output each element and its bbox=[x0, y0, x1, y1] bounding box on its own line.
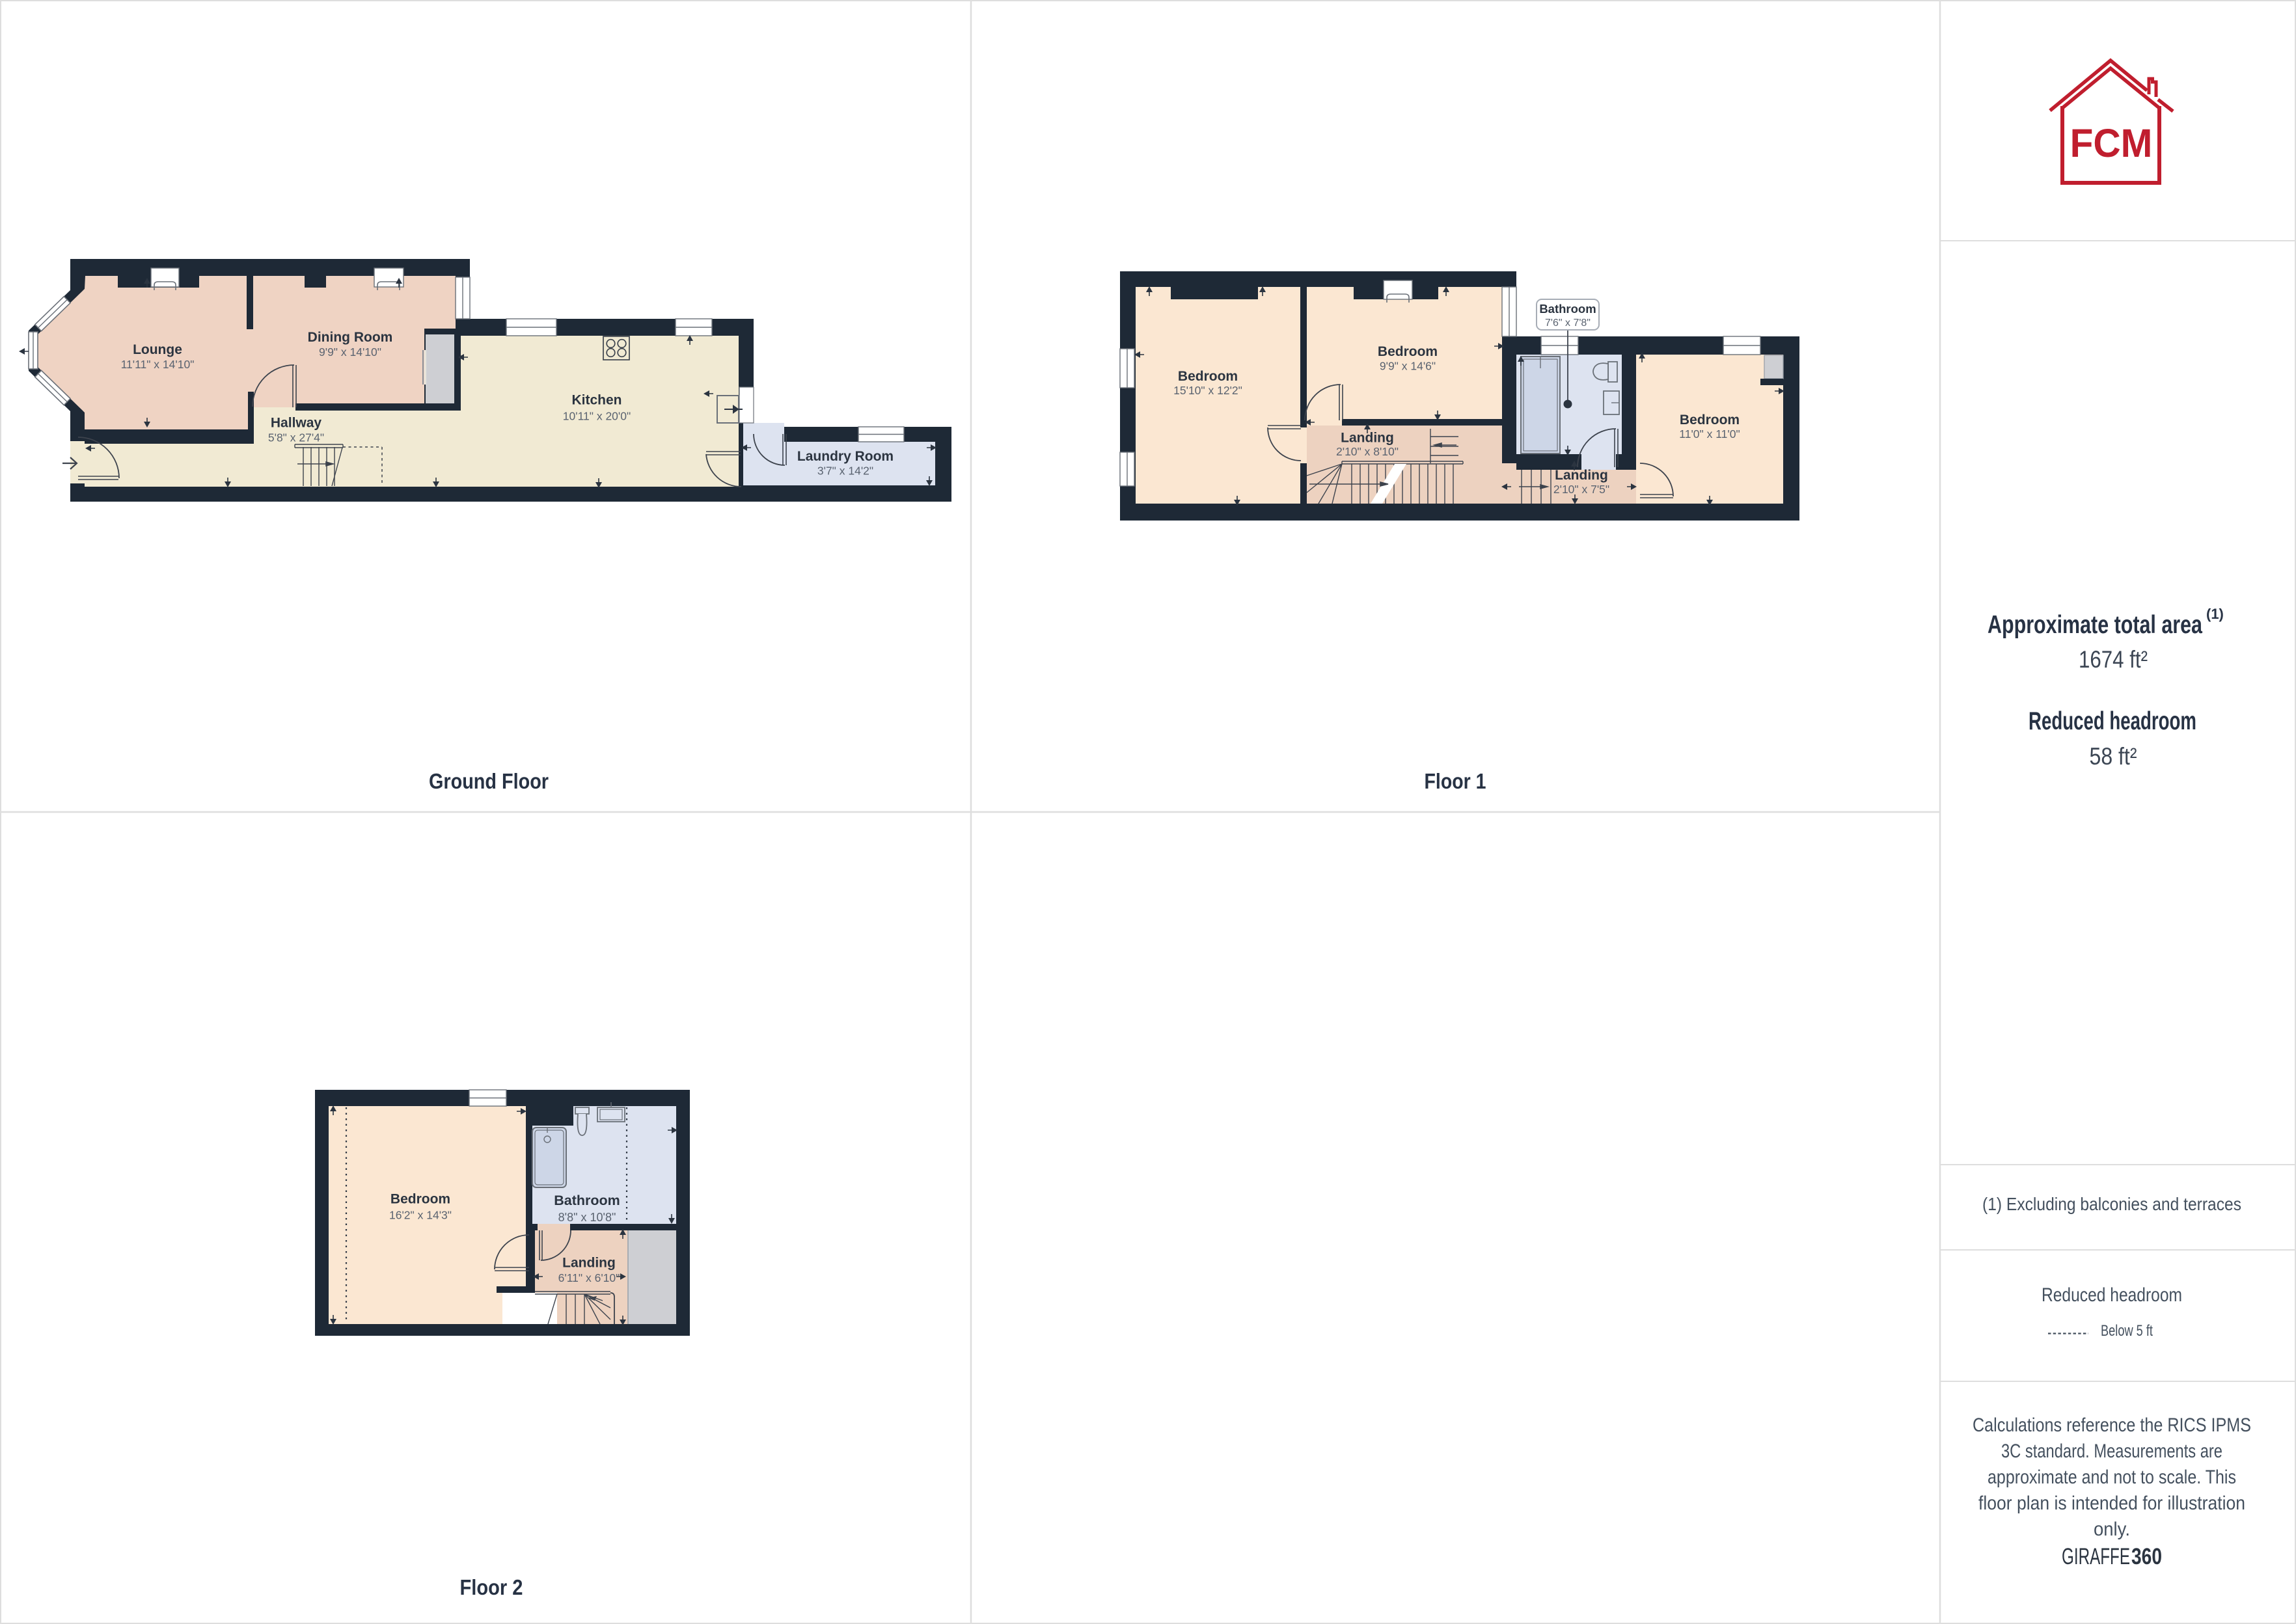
svg-text:Bedroom: Bedroom bbox=[390, 1192, 450, 1207]
svg-text:1674 ft²: 1674 ft² bbox=[2079, 646, 2148, 673]
svg-text:6'11" x 6'10": 6'11" x 6'10" bbox=[558, 1271, 620, 1284]
svg-text:11'0" x 11'0": 11'0" x 11'0" bbox=[1679, 427, 1740, 440]
svg-text:Laundry Room: Laundry Room bbox=[797, 449, 894, 464]
svg-text:Bathroom: Bathroom bbox=[554, 1193, 620, 1208]
svg-text:Ground Floor: Ground Floor bbox=[429, 769, 549, 793]
svg-text:3C standard. Measurements are: 3C standard. Measurements are bbox=[2001, 1441, 2222, 1462]
svg-text:Floor 1: Floor 1 bbox=[1425, 769, 1486, 793]
svg-text:9'9" x 14'6": 9'9" x 14'6" bbox=[1380, 360, 1436, 373]
svg-text:2'10" x 7'5": 2'10" x 7'5" bbox=[1553, 483, 1609, 496]
svg-text:15'10" x 12'2": 15'10" x 12'2" bbox=[1173, 384, 1242, 397]
svg-text:Landing: Landing bbox=[1341, 431, 1394, 446]
svg-text:Calculations reference the RIC: Calculations reference the RICS IPMS bbox=[1973, 1414, 2251, 1436]
svg-text:2'10" x 8'10": 2'10" x 8'10" bbox=[1336, 445, 1399, 458]
svg-text:Bedroom: Bedroom bbox=[1178, 369, 1238, 384]
svg-text:only.: only. bbox=[2094, 1519, 2130, 1540]
svg-text:Reduced headroom: Reduced headroom bbox=[2029, 707, 2196, 735]
svg-text:16'2" x 14'3": 16'2" x 14'3" bbox=[389, 1209, 452, 1222]
svg-text:Landing: Landing bbox=[1555, 468, 1608, 483]
svg-text:floor plan is intended for ill: floor plan is intended for illustration bbox=[1978, 1493, 2245, 1514]
svg-text:360: 360 bbox=[2131, 1544, 2162, 1569]
svg-text:(1) Excluding balconies and te: (1) Excluding balconies and terraces bbox=[1982, 1194, 2241, 1214]
svg-text:Kitchen: Kitchen bbox=[571, 393, 622, 408]
svg-text:approximate and not to scale.: approximate and not to scale. This bbox=[1988, 1467, 2236, 1488]
svg-text:Reduced headroom: Reduced headroom bbox=[2042, 1284, 2182, 1306]
svg-text:FCM: FCM bbox=[2070, 121, 2153, 165]
svg-text:GIRAFFE: GIRAFFE bbox=[2062, 1544, 2130, 1569]
svg-text:Hallway: Hallway bbox=[271, 416, 322, 431]
svg-text:10'11" x 20'0": 10'11" x 20'0" bbox=[563, 410, 631, 423]
svg-text:8'8" x 10'8": 8'8" x 10'8" bbox=[558, 1211, 616, 1224]
svg-text:Lounge: Lounge bbox=[133, 342, 182, 357]
svg-text:Approximate total area: Approximate total area bbox=[1988, 611, 2202, 639]
svg-text:11'11" x 14'10": 11'11" x 14'10" bbox=[121, 358, 195, 371]
svg-text:5'8" x 27'4": 5'8" x 27'4" bbox=[268, 431, 324, 444]
svg-text:3'7" x 14'2": 3'7" x 14'2" bbox=[817, 465, 873, 478]
svg-text:(1): (1) bbox=[2206, 606, 2224, 622]
svg-text:58 ft²: 58 ft² bbox=[2090, 743, 2137, 770]
svg-text:Bathroom: Bathroom bbox=[1539, 302, 1596, 316]
svg-text:Landing: Landing bbox=[562, 1256, 616, 1271]
svg-text:Bedroom: Bedroom bbox=[1680, 413, 1740, 427]
svg-text:9'9" x 14'10": 9'9" x 14'10" bbox=[319, 345, 381, 359]
svg-text:Below 5 ft: Below 5 ft bbox=[2101, 1322, 2153, 1340]
svg-text:Bedroom: Bedroom bbox=[1378, 344, 1438, 359]
svg-text:Floor 2: Floor 2 bbox=[460, 1575, 523, 1599]
svg-text:7'6" x 7'8": 7'6" x 7'8" bbox=[1545, 318, 1591, 329]
svg-text:Dining Room: Dining Room bbox=[308, 330, 393, 345]
